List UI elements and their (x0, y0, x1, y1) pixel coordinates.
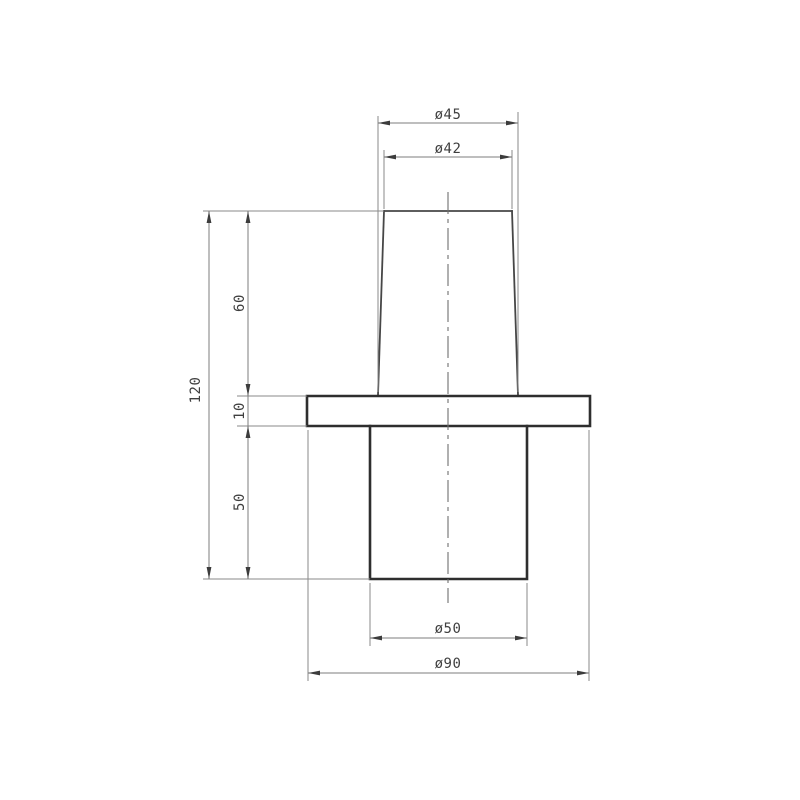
dim-total-height: 120 (188, 211, 209, 579)
dimension-label: 120 (188, 377, 204, 404)
drawing-canvas: ø45 ø42 120 60 10 50 (0, 0, 800, 800)
dimension-label: 10 (232, 402, 248, 420)
dimension-label: 60 (232, 294, 248, 312)
part-outline (307, 192, 590, 603)
dimension-label: 50 (232, 493, 248, 511)
dimension-label: ø42 (435, 141, 462, 157)
dimension-label: ø50 (435, 621, 462, 637)
dim-lower-height: 50 (232, 426, 248, 579)
dimension-label: ø45 (435, 107, 462, 123)
dimension-label: ø90 (435, 656, 462, 672)
dim-flange-thickness: 10 (232, 396, 248, 426)
technical-drawing: ø45 ø42 120 60 10 50 (0, 0, 800, 800)
cone-right-edge (512, 211, 518, 395)
cone-left-edge (378, 211, 384, 395)
dim-upper-height: 60 (232, 211, 248, 396)
